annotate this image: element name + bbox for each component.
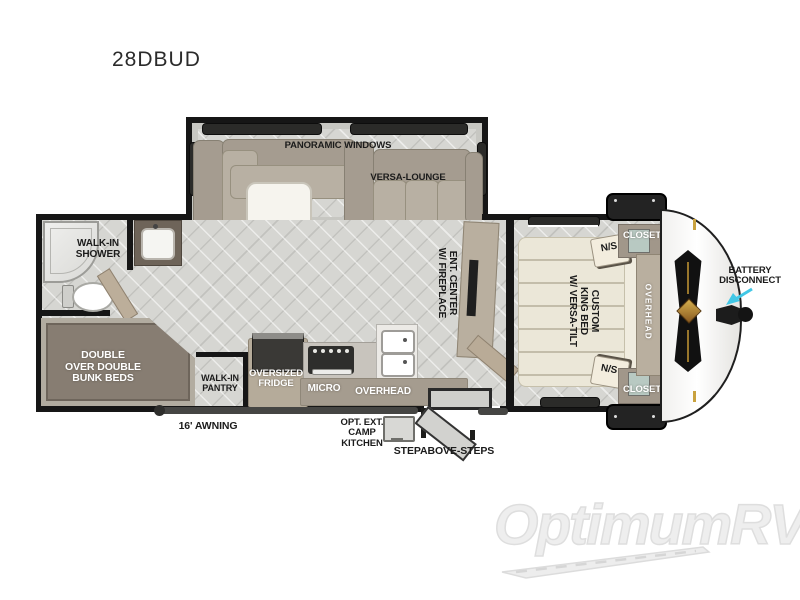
cap-gold-tick-bottom xyxy=(693,391,696,402)
storage-bottom-screw-2 xyxy=(652,415,655,418)
pantry-label-line1: WALK-IN xyxy=(201,373,239,383)
storage-top-screw-1 xyxy=(614,199,617,202)
king-bed-label: CUSTOM KING BED W/ VERSA-TILT xyxy=(560,253,600,369)
closet-front-label: CLOSET xyxy=(618,385,666,395)
bedroom-window-bottom-icon xyxy=(540,397,600,408)
bunk-label-line1: DOUBLE xyxy=(81,349,125,361)
stove-knob-5 xyxy=(345,349,349,353)
kitchen-faucet-icon xyxy=(403,338,407,342)
awning-bar-right xyxy=(478,408,508,415)
kitchen-overhead-label: OVERHEAD xyxy=(352,386,414,397)
fridge-label: OVERSIZED FRIDGE xyxy=(246,369,306,390)
awning-bar xyxy=(160,407,418,414)
bunk-beds-label: DOUBLE OVER DOUBLE BUNK BEDS xyxy=(50,350,156,385)
walk-in-shower-label: WALK-IN SHOWER xyxy=(58,238,138,260)
entry-step-foot xyxy=(470,430,475,440)
entry-landing xyxy=(428,388,492,410)
panoramic-window-right-icon xyxy=(350,123,468,135)
pantry-label-line2: PANTRY xyxy=(202,383,237,393)
floorplan-canvas: 28DBUD PANORAMIC WINDOWS VERSA-LOUNGE WA… xyxy=(0,0,800,600)
bedroom-wall xyxy=(506,218,514,408)
fridge-label-line2: FRIDGE xyxy=(258,378,293,389)
wildwood-badge-text-bottom xyxy=(687,330,689,362)
kitchen-sink-basin-1 xyxy=(381,330,415,354)
stove-knob-3 xyxy=(329,349,333,353)
stove-knob-1 xyxy=(313,349,317,353)
king-bed-label-line3: W/ VERSA-TILT xyxy=(567,275,578,347)
pantry-label: WALK-IN PANTRY xyxy=(197,374,243,394)
bathroom-faucet-icon xyxy=(153,224,158,229)
stove-knob-2 xyxy=(321,349,325,353)
walk-in-shower-label-line2: SHOWER xyxy=(76,249,120,260)
bathroom-sink-icon xyxy=(141,228,175,260)
king-bed-label-line1: CUSTOM xyxy=(589,290,600,333)
bedroom-window-top-sill xyxy=(528,225,598,227)
bunk-label-line2: OVER DOUBLE xyxy=(65,361,141,373)
king-bed-label-line2: KING BED xyxy=(578,287,589,335)
exterior-storage-top-icon xyxy=(606,193,667,221)
versa-lounge-label: VERSA-LOUNGE xyxy=(360,173,456,183)
panoramic-window-left-icon xyxy=(202,123,322,135)
stove-knob-4 xyxy=(337,349,341,353)
bedroom-overhead-label: OVERHEAD xyxy=(643,258,652,366)
sectional-sofa-arm-right xyxy=(344,142,374,226)
pantry-wall-top xyxy=(196,352,248,357)
cap-gold-tick-top xyxy=(693,219,696,230)
ent-center-label-line1: ENT. CENTER xyxy=(447,251,458,315)
micro-label: MICRO xyxy=(302,383,346,394)
storage-top-screw-2 xyxy=(652,199,655,202)
camp-kitchen-label-line1: OPT. EXT. xyxy=(341,417,384,428)
watermark-road-icon xyxy=(498,544,713,582)
steps-label: STEPABOVE-STEPS xyxy=(388,446,500,458)
camp-kitchen-handle xyxy=(391,438,403,441)
closet-rear-label: CLOSET xyxy=(618,231,666,241)
camp-kitchen-label-line2: CAMP xyxy=(348,427,376,438)
battery-label-line1: BATTERY xyxy=(728,265,771,276)
panoramic-windows-label: PANORAMIC WINDOWS xyxy=(258,141,418,151)
camp-kitchen-label-line3: KITCHEN xyxy=(341,438,383,449)
wildwood-badge-text-top xyxy=(687,262,689,294)
page-title: 28DBUD xyxy=(112,48,201,72)
ent-center-label-line2: W/ FIREPLACE xyxy=(436,248,447,318)
walk-in-shower-label-line1: WALK-IN xyxy=(77,238,119,249)
kitchen-faucet-icon-2 xyxy=(403,360,407,364)
awning-label: 16' AWNING xyxy=(162,421,254,433)
ent-center-label: ENT. CENTER W/ FIREPLACE xyxy=(436,221,458,345)
battery-disconnect-arrow-icon xyxy=(722,284,758,310)
awning-end-cap xyxy=(154,405,165,416)
kitchen-sink-basin-2 xyxy=(381,353,415,377)
oven-handle-icon xyxy=(312,369,352,375)
storage-bottom-screw-1 xyxy=(614,415,617,418)
fridge-top-icon xyxy=(252,333,304,372)
versa-lounge-arm xyxy=(465,152,483,224)
bunk-label-line3: BUNK BEDS xyxy=(72,372,134,384)
